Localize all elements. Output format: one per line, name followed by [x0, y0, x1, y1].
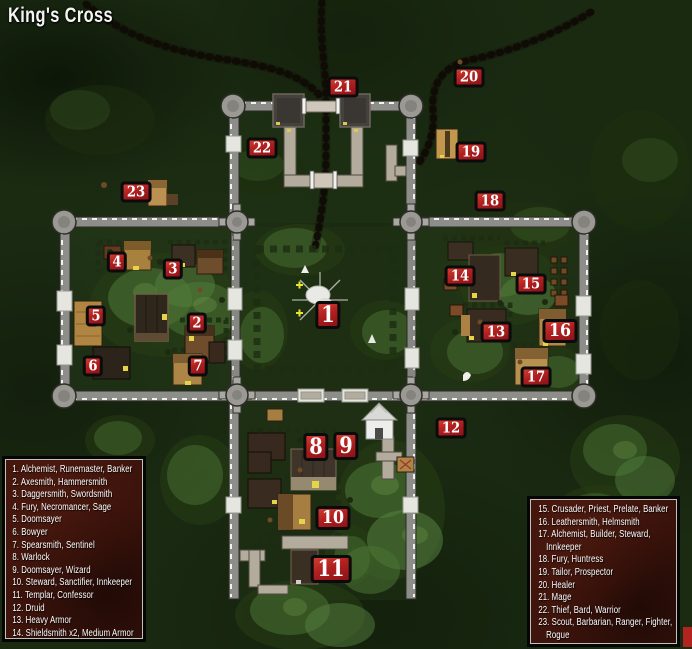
marker-number: 8	[309, 436, 322, 458]
legend-item: 21. Mage	[536, 592, 673, 605]
legend-left-panel: 1. Alchemist, Runemaster, Banker2. Axesm…	[2, 456, 146, 642]
map-marker-23[interactable]: 23	[121, 182, 152, 203]
building	[135, 294, 168, 341]
legend-item: 23. Scout, Barbarian, Ranger, Fighter, R…	[536, 617, 673, 642]
map-marker-18[interactable]: 18	[475, 191, 506, 212]
map-marker-9[interactable]: 9	[333, 432, 358, 460]
marker-number: 5	[91, 309, 100, 324]
marker-number: 4	[112, 255, 121, 270]
legend-right-panel: 15. Crusader, Priest, Prelate, Banker16.…	[527, 496, 680, 647]
marker-number: 7	[193, 359, 202, 374]
map-marker-8[interactable]: 8	[303, 433, 328, 461]
marker-number: 1	[321, 304, 334, 326]
legend-item: 3. Daggersmith, Swordsmith	[10, 489, 139, 502]
map-marker-17[interactable]: 17	[521, 367, 552, 388]
map-marker-10[interactable]: 10	[315, 506, 350, 530]
map-marker-7[interactable]: 7	[188, 356, 208, 377]
map-marker-14[interactable]: 14	[445, 266, 476, 287]
marker-number: 6	[88, 359, 97, 374]
marker-number: 9	[339, 435, 352, 457]
marker-number: 12	[442, 421, 460, 436]
legend-left-list: 1. Alchemist, Runemaster, Banker2. Axesm…	[10, 464, 139, 640]
marker-number: 23	[127, 185, 145, 200]
building	[209, 342, 225, 363]
legend-item: 4. Fury, Necromancer, Sage	[10, 502, 139, 515]
marker-number: 17	[527, 370, 545, 385]
marker-number: 21	[334, 80, 352, 95]
legend-item: 1. Alchemist, Runemaster, Banker	[10, 464, 139, 477]
marker-number: 13	[487, 325, 505, 340]
crate	[450, 305, 463, 316]
corner-watermark	[683, 627, 692, 647]
map-marker-4[interactable]: 4	[107, 252, 127, 273]
map-canvas: King's Cross 1 2 3 4 5 6 7 8 9 10 11 12 …	[0, 0, 692, 649]
marker-number: 15	[522, 277, 540, 292]
legend-item: 13. Heavy Armor	[10, 615, 139, 628]
marker-number: 22	[253, 141, 271, 156]
legend-right-list: 15. Crusader, Priest, Prelate, Banker16.…	[536, 504, 673, 643]
marker-number: 2	[192, 316, 201, 331]
legend-item: 12. Druid	[10, 603, 139, 616]
legend-item: 20. Healer	[536, 580, 673, 593]
legend-item: 11. Templar, Confessor	[10, 590, 139, 603]
marker-number: 10	[322, 509, 344, 527]
map-marker-21[interactable]: 21	[328, 77, 359, 98]
legend-item: 15. Crusader, Priest, Prelate, Banker	[536, 504, 673, 517]
map-marker-13[interactable]: 13	[481, 322, 512, 343]
legend-item: 9. Doomsayer, Wizard	[10, 565, 139, 578]
marker-number: 20	[460, 70, 478, 85]
legend-item: 16. Leathersmith, Helmsmith	[536, 517, 673, 530]
building	[505, 248, 538, 276]
legend-item: 14. Shieldsmith x2, Medium Armor	[10, 628, 139, 641]
building	[124, 241, 151, 270]
map-marker-12[interactable]: 12	[436, 418, 467, 439]
crate	[555, 295, 568, 306]
building	[278, 494, 311, 530]
legend-item: 19. Tailor, Prospector	[536, 567, 673, 580]
map-marker-6[interactable]: 6	[83, 356, 103, 377]
marker-number: 11	[318, 558, 345, 580]
legend-item: 22. Thief, Bard, Warrior	[536, 605, 673, 618]
building	[248, 479, 281, 508]
marker-number: 16	[549, 322, 571, 340]
legend-item: 6. Bowyer	[10, 527, 139, 540]
marker-number: 19	[462, 145, 480, 160]
building	[197, 250, 223, 274]
legend-item: 8. Warlock	[10, 552, 139, 565]
legend-item: 2. Axesmith, Hammersmith	[10, 477, 139, 490]
marker-number: 18	[481, 194, 499, 209]
crate	[397, 457, 414, 472]
map-marker-1[interactable]: 1	[315, 301, 340, 329]
legend-item: 10. Steward, Sanctifier, Innkeeper	[10, 577, 139, 590]
map-marker-15[interactable]: 15	[516, 274, 547, 295]
marker-number: 3	[168, 262, 177, 277]
map-marker-19[interactable]: 19	[456, 142, 487, 163]
map-marker-20[interactable]: 20	[454, 67, 485, 88]
map-marker-3[interactable]: 3	[163, 259, 183, 280]
legend-item: 5. Doomsayer	[10, 514, 139, 527]
legend-item: 7. Spearsmith, Sentinel	[10, 540, 139, 553]
building	[148, 180, 178, 206]
legend-item: 17. Alchemist, Builder, Steward, Innkeep…	[536, 529, 673, 554]
map-title: King's Cross	[8, 4, 113, 28]
map-marker-22[interactable]: 22	[247, 138, 278, 159]
marker-number: 14	[451, 269, 469, 284]
building	[248, 452, 271, 473]
map-marker-16[interactable]: 16	[542, 319, 577, 343]
legend-item: 18. Fury, Huntress	[536, 554, 673, 567]
map-marker-11[interactable]: 11	[311, 555, 352, 583]
map-marker-5[interactable]: 5	[86, 306, 106, 327]
map-marker-2[interactable]: 2	[187, 313, 207, 334]
